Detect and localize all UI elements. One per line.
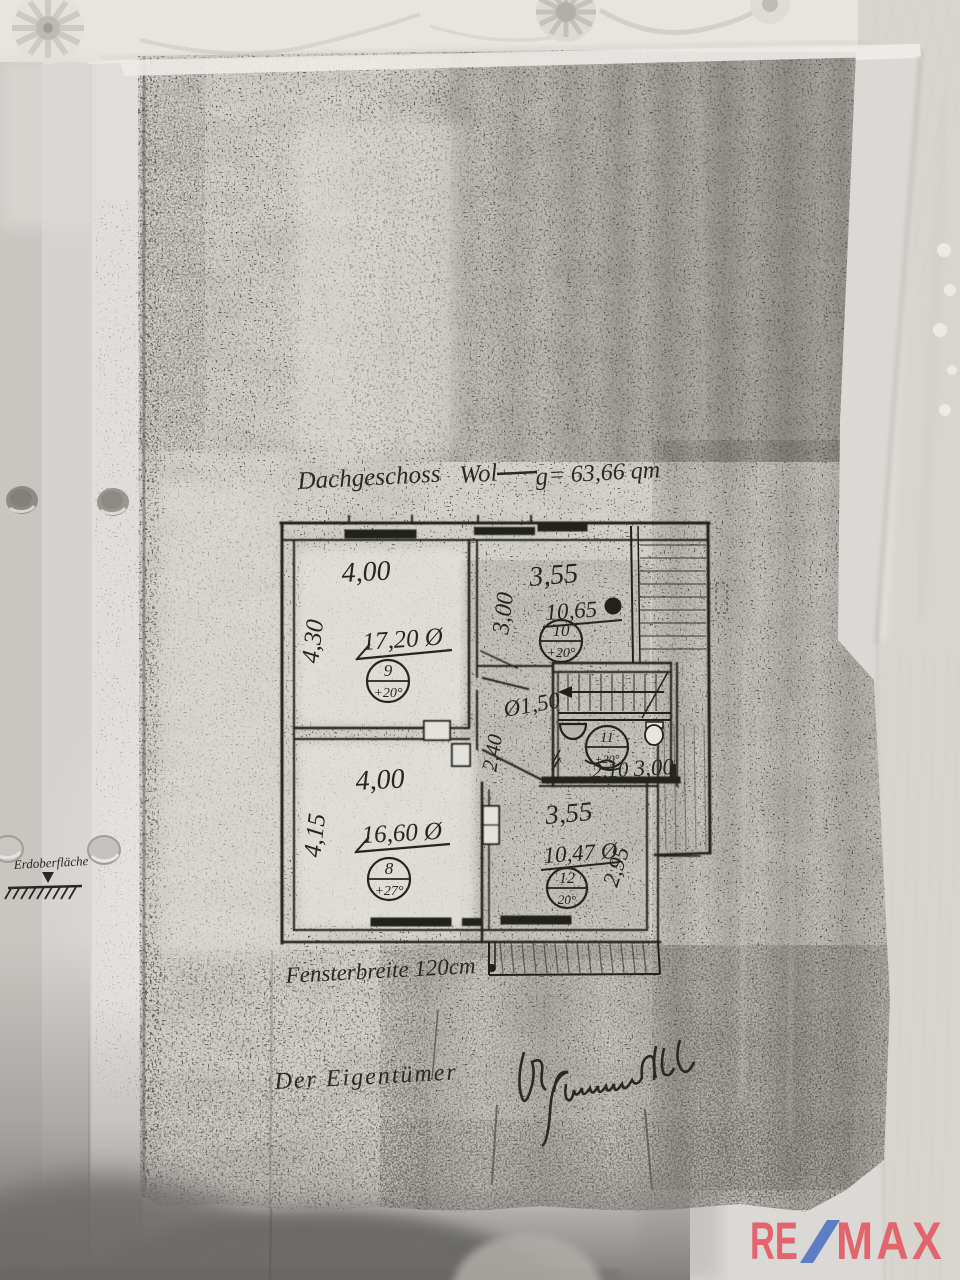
svg-text:4,00: 4,00 [355,763,406,797]
svg-text:g: g [535,463,549,491]
svg-text:12: 12 [559,870,575,887]
svg-text:MAX: MAX [836,1212,945,1270]
svg-text:20°: 20° [558,892,576,907]
svg-text:9: 9 [384,661,393,680]
svg-text:3,00: 3,00 [488,591,519,637]
svg-text:10: 10 [553,621,571,640]
svg-text:+20°: +20° [546,646,575,661]
svg-text:4,30: 4,30 [297,618,329,665]
svg-text:16,60 Ø: 16,60 Ø [361,818,444,849]
svg-text:3,55: 3,55 [543,796,594,830]
svg-text:3,00: 3,00 [632,754,675,781]
svg-text:8: 8 [385,859,394,878]
svg-text:11: 11 [600,730,614,746]
svg-text:RE: RE [750,1213,798,1271]
svg-text:4,15: 4,15 [299,812,331,859]
svg-text:3,55: 3,55 [527,558,580,593]
svg-text:4,00: 4,00 [341,555,392,589]
svg-text:+20°: +20° [373,686,402,701]
svg-text:+27°: +27° [374,884,403,899]
svg-text:Wol: Wol [459,459,499,489]
